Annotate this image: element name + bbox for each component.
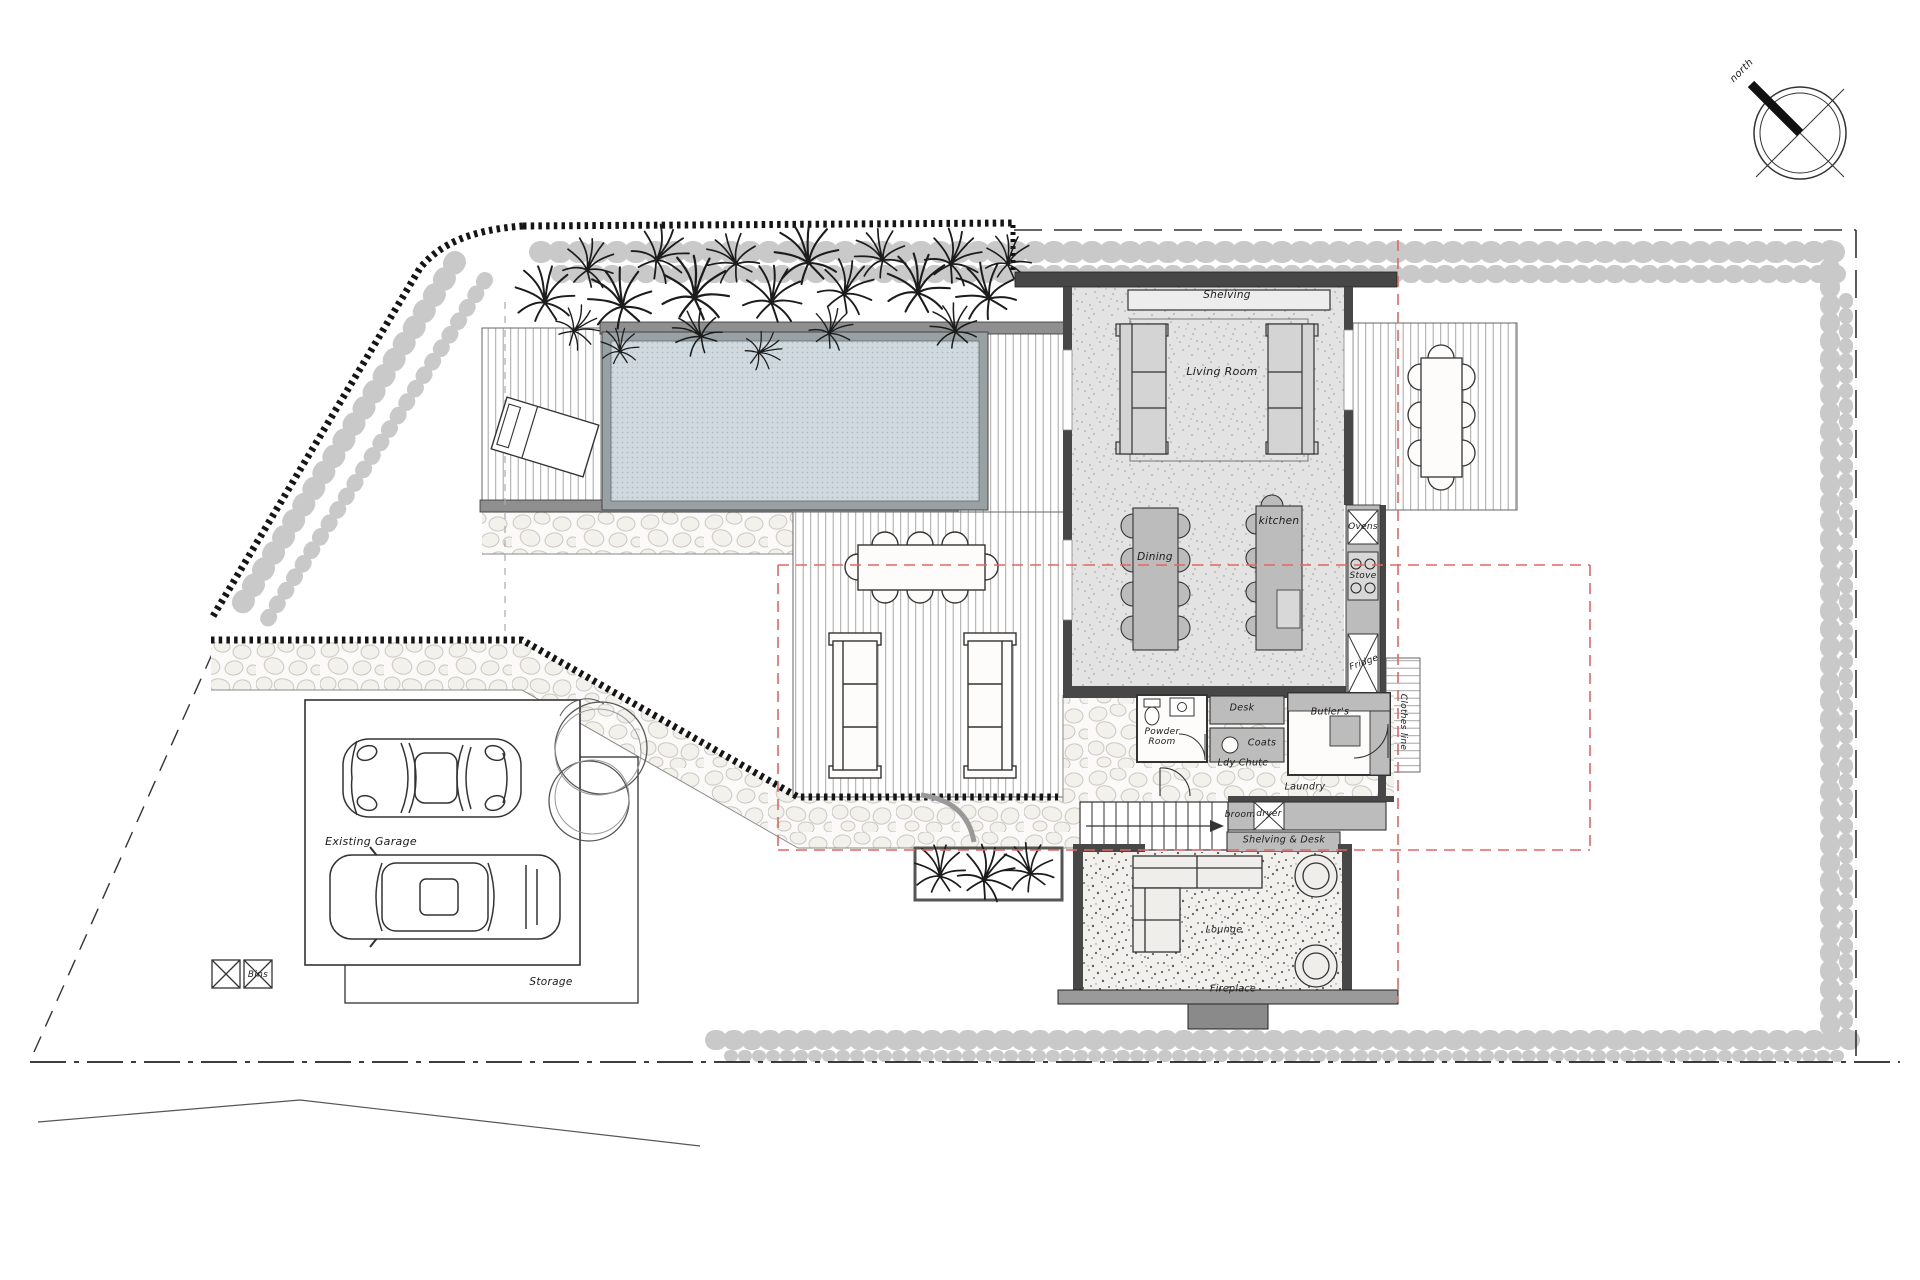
car-suv [330, 847, 560, 947]
pool [602, 332, 988, 510]
label-coats: Coats [1248, 739, 1276, 750]
label-stove: Stove [1349, 571, 1376, 581]
butlers-pantry [1288, 693, 1390, 775]
label-butlers: Butler's [1311, 708, 1350, 719]
site-plan-drawing [0, 0, 1920, 1280]
label-storage: Storage [529, 977, 572, 989]
planter [915, 836, 1062, 908]
label-existing-garage: Existing Garage [325, 836, 417, 848]
stairs [1080, 802, 1228, 850]
label-bins: Bins [248, 970, 268, 980]
label-broom: broom [1225, 810, 1256, 820]
north-arrow-icon [1751, 84, 1846, 179]
label-fireplace: Fireplace [1210, 985, 1256, 996]
label-dining: Dining [1137, 552, 1173, 564]
label-powder-room: Powder Room [1135, 727, 1189, 747]
floor-plan: north Shelving Living Room Dining kitche… [0, 0, 1920, 1280]
label-kitchen: kitchen [1259, 516, 1300, 528]
label-shelving: Shelving [1203, 290, 1251, 302]
driveway-edge [38, 1100, 700, 1146]
lounge-room [1058, 844, 1398, 1029]
label-clothes-line: Clothes line [1398, 694, 1408, 750]
label-ldy-chute: Ldy Chute [1218, 759, 1269, 770]
label-ovens: Ovens [1348, 522, 1378, 532]
car-sports [343, 739, 521, 817]
label-living-room: Living Room [1186, 366, 1257, 378]
label-shelving-desk: Shelving & Desk [1243, 836, 1325, 847]
label-desk: Desk [1230, 704, 1255, 715]
label-laundry: Laundry [1285, 783, 1326, 794]
label-dryer: dryer [1256, 809, 1281, 819]
garage-area [38, 700, 700, 1146]
label-lounge: Lounge [1206, 926, 1243, 937]
